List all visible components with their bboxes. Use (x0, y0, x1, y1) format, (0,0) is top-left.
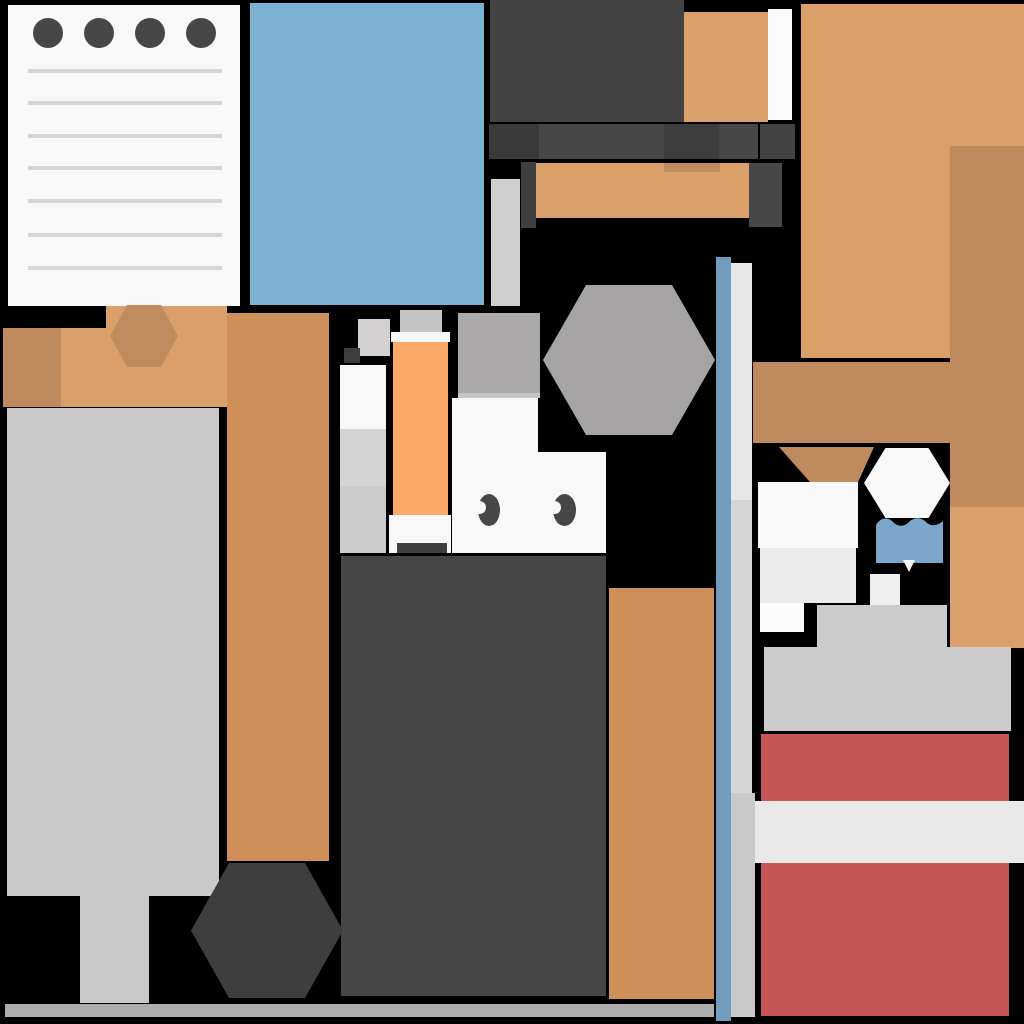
tan-bar-right[interactable] (753, 362, 950, 443)
character-eye-right (553, 494, 576, 526)
white-stripe (755, 801, 1024, 863)
white-panel-top (768, 9, 792, 120)
white-mat-right[interactable] (758, 482, 858, 548)
character-hair (458, 313, 540, 398)
notepad-line-5 (28, 199, 222, 203)
notepad-line-3 (28, 134, 222, 138)
character-eye-left (478, 494, 500, 526)
small-gray-block-a (400, 310, 442, 332)
dark-shelf-seg-1 (489, 124, 539, 159)
gray-table-leg (80, 896, 149, 1003)
dark-shelf-seg-2 (539, 124, 664, 159)
tan-square-left (3, 328, 61, 407)
notepad-line-4 (28, 166, 222, 170)
orange-column-mid-cap (391, 332, 450, 342)
dark-rug-bottom[interactable] (341, 556, 606, 996)
tan-bench-shade (664, 163, 720, 172)
notepad-paper[interactable] (8, 5, 240, 306)
game-scene (0, 0, 1024, 1024)
gray-mat-right (760, 548, 856, 603)
gray-block-step (817, 605, 947, 647)
white-column-bottom (340, 486, 386, 553)
dark-shelf-seg-5 (760, 124, 795, 159)
notepad-hole-2 (84, 18, 114, 48)
gray-table[interactable] (7, 408, 219, 896)
wall-strip-lower (731, 793, 755, 1017)
notepad-line-6 (28, 233, 222, 237)
notepad-line-7 (28, 266, 222, 270)
blue-wall-divider (716, 257, 731, 1021)
blue-cup-notch (903, 560, 915, 572)
notepad-hole-3 (135, 18, 165, 48)
light-strip-mid (491, 179, 520, 306)
white-column-mid (340, 429, 386, 486)
eye-notch (473, 501, 486, 514)
blue-cup[interactable] (876, 513, 943, 563)
notepad-line-2 (28, 101, 222, 105)
orange-crate-top[interactable] (684, 12, 768, 122)
orange-column-mid-base-bar (397, 543, 447, 553)
orange-column-left[interactable] (227, 313, 329, 861)
small-dark-square (344, 348, 360, 363)
dark-cabinet-top[interactable] (490, 0, 684, 122)
orange-column-mid[interactable] (393, 342, 448, 517)
wall-strip-upper (731, 263, 752, 500)
dark-shelf-seg-4 (719, 124, 758, 159)
blue-mat[interactable] (250, 3, 484, 305)
white-column-top (340, 365, 386, 429)
orange-column-center[interactable] (609, 588, 714, 999)
small-gray-block-b (358, 319, 390, 356)
gray-block-main[interactable] (764, 647, 1011, 731)
white-hexagon-table[interactable] (864, 448, 950, 518)
wall-strip-mid (731, 500, 752, 793)
dark-bench-leg-right (749, 163, 782, 227)
gray-hexagon-table[interactable] (543, 285, 715, 435)
red-crate[interactable] (761, 734, 1009, 1016)
dark-bench-leg-left (521, 162, 536, 228)
eye-notch (548, 501, 561, 514)
notepad-hole-1 (33, 18, 63, 48)
notepad-line-1 (28, 69, 222, 73)
notepad-hole-4 (186, 18, 216, 48)
character-body-upper[interactable] (452, 398, 538, 452)
bottom-baseboard (5, 1004, 714, 1017)
white-small-right (760, 603, 804, 632)
tan-column-right[interactable] (950, 146, 1024, 507)
orange-column-right-lower (950, 507, 1024, 648)
dark-shelf-seg-3 (664, 124, 719, 159)
small-square-right (870, 574, 900, 607)
